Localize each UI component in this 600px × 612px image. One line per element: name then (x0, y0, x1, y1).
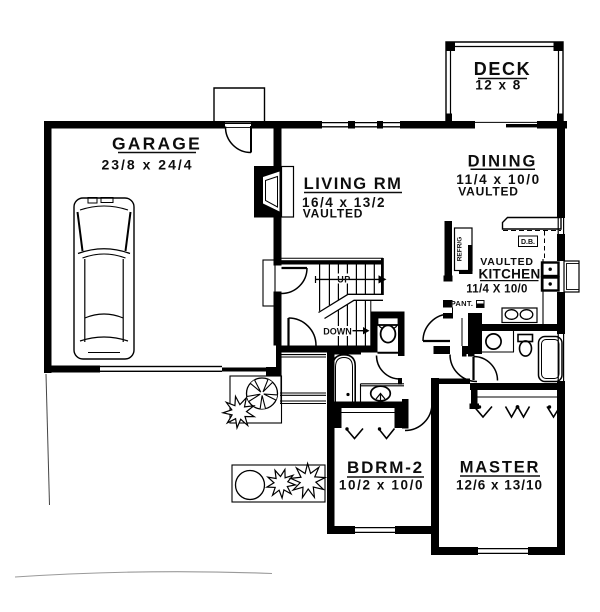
svg-text:10/2 x 10/0: 10/2 x 10/0 (339, 478, 424, 493)
svg-text:MASTER: MASTER (460, 459, 540, 477)
svg-text:12 x 8: 12 x 8 (475, 78, 522, 93)
svg-text:REFR/G: REFR/G (457, 237, 464, 262)
svg-text:GARAGE: GARAGE (112, 134, 202, 154)
svg-text:23/8 x 24/4: 23/8 x 24/4 (101, 157, 193, 173)
svg-text:DECK: DECK (474, 59, 531, 79)
svg-text:UP: UP (337, 275, 351, 285)
svg-text:11/4 X 10/0: 11/4 X 10/0 (466, 284, 528, 296)
svg-text:DINING: DINING (468, 153, 538, 171)
svg-text:KITCHEN: KITCHEN (478, 266, 540, 281)
svg-text:12/6 x 13/10: 12/6 x 13/10 (456, 478, 543, 493)
svg-text:VAULTED: VAULTED (303, 207, 364, 221)
svg-text:BDRM-2: BDRM-2 (347, 458, 424, 477)
svg-text:LIVING RM: LIVING RM (304, 175, 403, 193)
svg-text:D.B.: D.B. (521, 239, 535, 246)
svg-text:VAULTED: VAULTED (458, 185, 519, 199)
svg-text:PANT.: PANT. (451, 299, 474, 308)
svg-text:DOWN: DOWN (323, 327, 352, 337)
